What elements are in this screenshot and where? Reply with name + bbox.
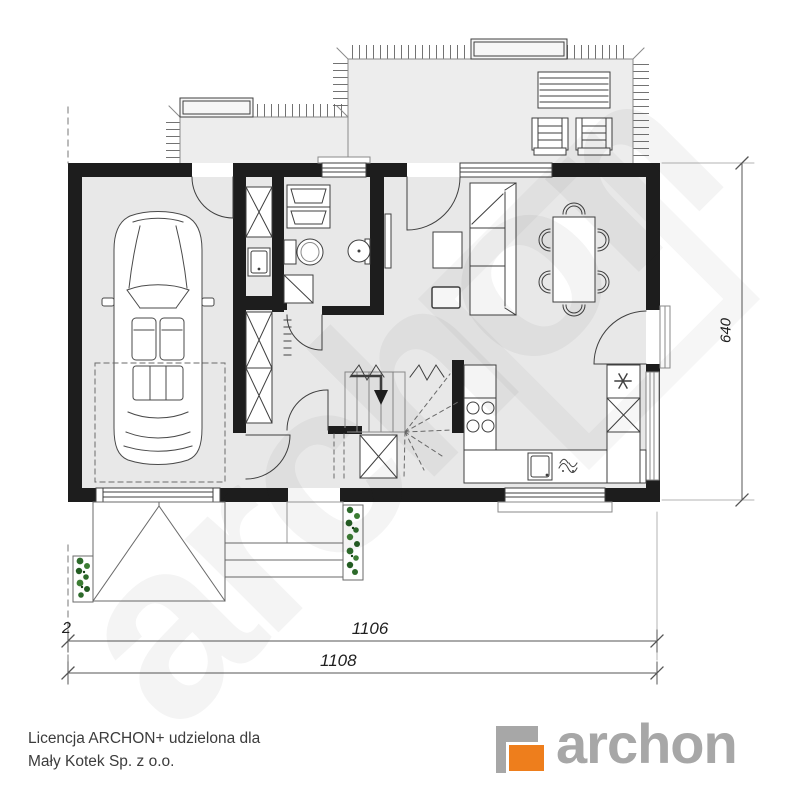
planter-plants — [73, 556, 93, 602]
floor-plan-canvas: archon 640 1106 1108 2 Licencja ARCHON+ … — [0, 0, 800, 800]
porch-steps — [225, 502, 345, 577]
dimension-right-height: 640 — [718, 301, 735, 361]
archon-logo-mark-icon — [492, 718, 548, 780]
dimension-bottom-outer: 1108 — [320, 651, 357, 671]
plan-drawing — [0, 0, 800, 800]
shower-tray — [284, 275, 313, 303]
terrace — [169, 39, 644, 163]
car — [102, 212, 214, 465]
terrace-chair — [576, 118, 612, 155]
archon-logo-text: archon — [556, 711, 737, 776]
license-line2: Mały Kotek Sp. z o.o. — [28, 750, 260, 773]
corner-sofa — [470, 183, 516, 315]
dimension-bottom-left-offset: 2 — [62, 620, 84, 638]
license-line1: Licencja ARCHON+ udzielona dla — [28, 727, 260, 750]
dimension-bottom-inner: 1106 — [320, 619, 420, 639]
driveway-ramp — [93, 502, 225, 601]
pouf — [432, 287, 460, 308]
terrace-table — [538, 72, 610, 108]
archon-logo: archon — [492, 718, 782, 780]
washer-dryer-stack — [287, 185, 330, 228]
terrace-chair — [532, 118, 568, 155]
toilet — [284, 239, 323, 265]
planter-plants — [343, 505, 363, 580]
kitchen-sink — [528, 453, 552, 480]
dining-table — [553, 217, 595, 302]
tv-sideboard — [385, 214, 391, 268]
utility-sink — [248, 248, 270, 276]
coffee-table — [433, 232, 462, 268]
license-note: Licencja ARCHON+ udzielona dla Mały Kote… — [28, 727, 260, 773]
archon-logo-orange-square — [509, 745, 544, 771]
garage-door — [96, 488, 220, 502]
